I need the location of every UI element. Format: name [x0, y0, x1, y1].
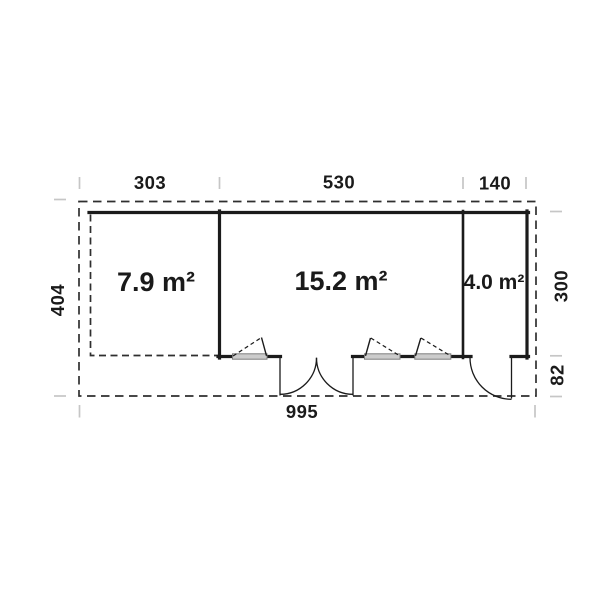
door-swing-arc [317, 358, 354, 395]
dim-label-bottom-total: 995 [286, 401, 318, 422]
floor-plan: 303 530 140 995 404 300 82 7.9 m² 15.2 m… [0, 0, 600, 600]
tilt-window-symbol [365, 338, 401, 359]
window-sill [233, 354, 268, 359]
window-opening-dash [233, 338, 261, 356]
dim-label-top-annex: 140 [479, 173, 511, 194]
window-sill [415, 354, 451, 359]
door-swing-arc [280, 358, 317, 395]
room-area-label-annex: 4.0 m² [464, 271, 525, 294]
tilt-window-symbol [233, 338, 268, 360]
dim-label-right-front: 82 [547, 364, 568, 386]
single-door-symbol [470, 358, 512, 400]
window-frame-line [366, 338, 371, 356]
window-frame-line [262, 338, 267, 356]
door-swing-arc [470, 358, 512, 400]
room-area-label-terrace: 7.9 m² [117, 267, 195, 297]
room-area-label-main: 15.2 m² [294, 266, 387, 296]
window-opening-dash [421, 338, 451, 356]
floor-plan-page: 303 530 140 995 404 300 82 7.9 m² 15.2 m… [0, 0, 600, 600]
window-sill [365, 354, 401, 359]
window-frame-line [416, 338, 421, 356]
dim-label-left-depth: 404 [47, 284, 68, 317]
dim-label-right-depth: 300 [551, 270, 572, 302]
tilt-window-symbol [415, 338, 451, 359]
roof-outline-dashed [79, 202, 536, 397]
window-opening-dash [371, 338, 400, 356]
double-door-symbol [280, 358, 353, 396]
dim-label-top-terrace: 303 [134, 172, 166, 193]
dim-label-top-main: 530 [323, 172, 355, 193]
